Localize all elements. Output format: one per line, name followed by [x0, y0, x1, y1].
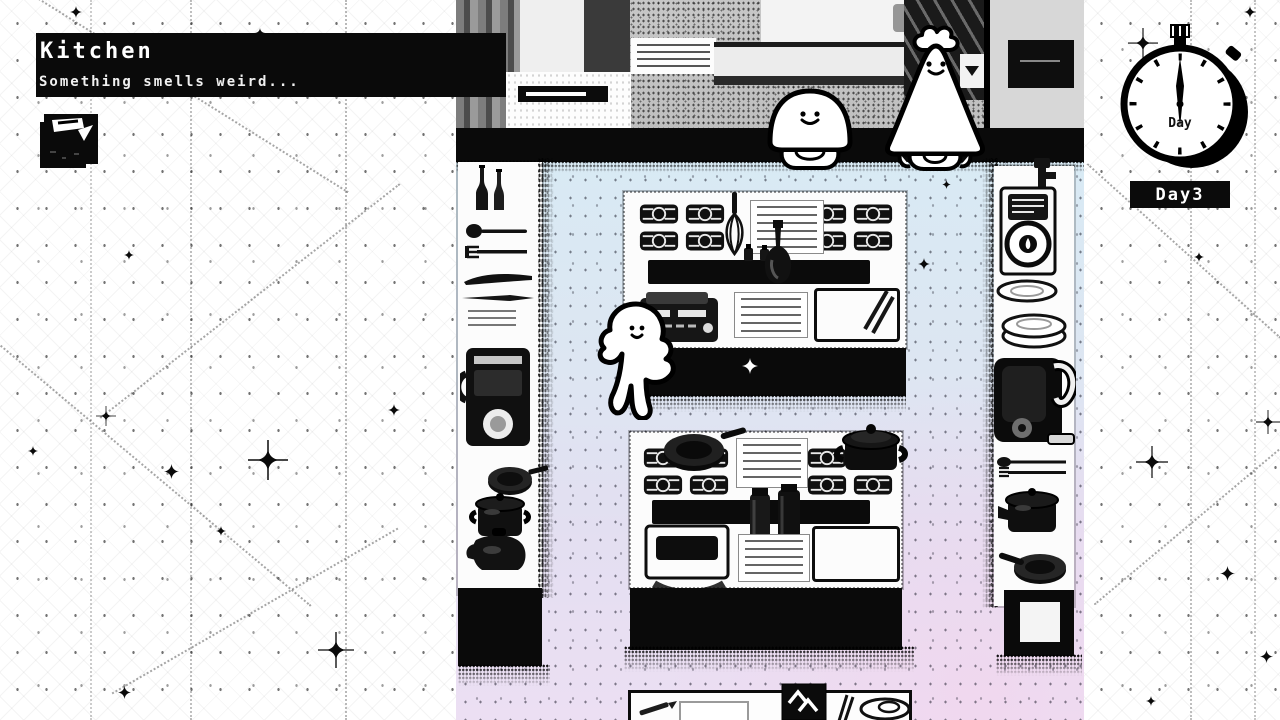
dotted-line	[112, 528, 399, 695]
game-screen: Kitchen Something smells weird... Day Da…	[0, 0, 1280, 720]
dotted-line	[190, 0, 192, 720]
island-dither	[624, 646, 914, 672]
gas-burners-icon	[638, 202, 726, 254]
counter-front-dither	[996, 654, 1082, 676]
cabinet	[1004, 590, 1074, 656]
bottom-table	[628, 690, 912, 720]
sparkle-icon	[216, 526, 226, 536]
sparkle-icon	[318, 632, 354, 668]
kettle-icon	[462, 526, 532, 576]
sparkle-icon	[164, 464, 179, 479]
pot-icon	[996, 480, 1066, 540]
round-blob-character[interactable]	[762, 82, 858, 172]
ghost-character[interactable]	[596, 296, 690, 420]
fridge-panel-line	[1020, 60, 1060, 62]
day-clock: Day	[1114, 24, 1254, 180]
island-front	[630, 588, 902, 650]
plate-stack-icon	[1000, 308, 1070, 352]
fork-icon	[464, 244, 530, 260]
dotted-line	[90, 0, 92, 720]
sparkle-icon	[248, 440, 288, 480]
counter-front-dither	[458, 664, 550, 686]
counter-front	[458, 588, 542, 666]
sparkle-icon	[1260, 650, 1273, 663]
sparkle-icon	[124, 250, 134, 260]
sparkle-icon	[388, 404, 400, 416]
oil-bottles-icon	[466, 164, 516, 212]
cabinet-door	[1020, 602, 1060, 642]
wall-note	[631, 38, 716, 74]
dotted-line	[100, 183, 401, 419]
stock-pot-icon	[834, 412, 908, 478]
chevron-mat-icon	[781, 683, 827, 720]
knife-icon	[861, 285, 897, 335]
recipe-sheet	[738, 534, 810, 582]
chopsticks-icon	[833, 693, 855, 720]
frying-pan-icon	[658, 420, 746, 478]
frying-pan-icon	[998, 542, 1070, 588]
sink-icon	[992, 350, 1076, 454]
sparkle-icon	[1220, 566, 1235, 581]
sparkle-icon	[118, 686, 131, 699]
knife-icon	[462, 270, 534, 288]
chef-blob-character[interactable]	[880, 22, 990, 172]
sparkle-icon	[1136, 446, 1168, 478]
sparkle-icon	[1146, 696, 1156, 706]
label-lines	[468, 310, 516, 326]
sparkle-icon	[1194, 252, 1204, 262]
sparkle-icon	[742, 358, 758, 374]
wall-gap	[584, 0, 630, 75]
sparkle-icon	[96, 406, 116, 426]
plate-icon	[996, 278, 1058, 306]
paper-sheet	[679, 701, 749, 720]
location-subtitle: Something smells weird...	[39, 74, 300, 90]
wall-counter-unit	[506, 72, 631, 134]
lower-island	[630, 428, 902, 684]
clock-label: Day	[1168, 116, 1192, 131]
left-counter	[458, 158, 558, 688]
cutting-board	[814, 288, 900, 342]
fridge-panel	[1008, 40, 1074, 88]
sparkle-icon	[28, 446, 38, 456]
sparkle-icon	[942, 180, 951, 189]
kitchen-scene	[456, 0, 1084, 720]
dotted-line	[1094, 437, 1280, 606]
cutting-board	[812, 526, 900, 582]
utensils-icon	[996, 456, 1070, 480]
right-counter	[990, 158, 1090, 698]
sparkle-icon	[918, 258, 930, 270]
stove-icon	[460, 344, 536, 452]
sparkle-icon	[1256, 410, 1280, 434]
pencil-icon	[637, 699, 679, 720]
spoon-icon	[464, 222, 530, 240]
location-title: Kitchen	[40, 39, 154, 64]
counter-dither-edge	[538, 158, 554, 598]
drawer-slot	[526, 92, 586, 96]
stopwatch-icon: Day	[1114, 24, 1254, 180]
sparkle-icon	[1244, 6, 1256, 18]
plate-icon	[859, 697, 911, 720]
sparkle-icon	[70, 6, 82, 18]
kitchen-scale-icon	[998, 186, 1058, 278]
knife-icon	[460, 292, 536, 304]
dotted-line	[1254, 0, 1256, 720]
note-lines	[637, 44, 710, 68]
dotted-line	[345, 0, 347, 720]
day-badge: Day3	[1130, 181, 1230, 208]
left-decor-panel	[0, 0, 456, 720]
notebook-icon[interactable]	[38, 112, 100, 170]
location-banner: Kitchen Something smells weird...	[36, 33, 506, 97]
recipe-sheet	[734, 292, 808, 338]
